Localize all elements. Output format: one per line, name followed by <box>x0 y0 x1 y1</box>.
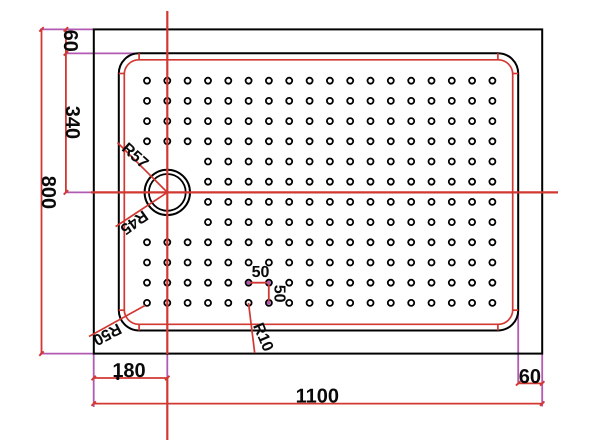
svg-text:800: 800 <box>37 176 59 209</box>
svg-text:50: 50 <box>271 285 288 303</box>
svg-text:180: 180 <box>112 360 145 382</box>
svg-text:340: 340 <box>61 106 83 139</box>
svg-text:60: 60 <box>519 366 541 388</box>
svg-text:1100: 1100 <box>296 386 339 408</box>
svg-text:60: 60 <box>59 30 81 52</box>
svg-text:50: 50 <box>252 264 270 281</box>
